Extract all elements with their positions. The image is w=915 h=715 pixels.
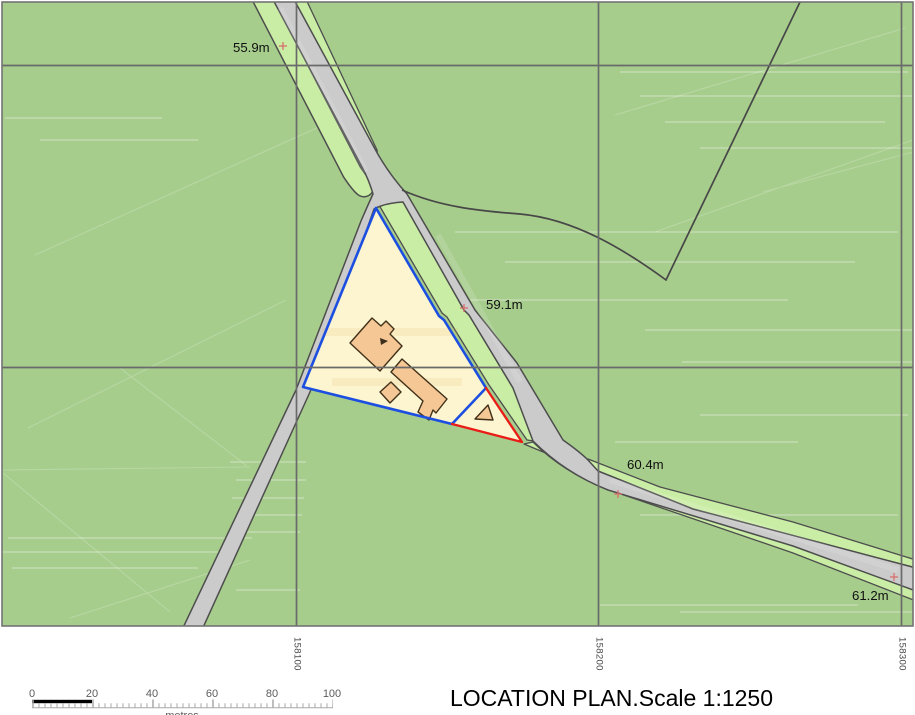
spot-height-label: 55.9m — [233, 40, 270, 55]
grid-easting-label: 158100 — [292, 637, 303, 671]
scale-tick-label: 60 — [206, 688, 218, 700]
scale-tick-label: 40 — [146, 688, 158, 700]
grid-easting-label: 158200 — [594, 637, 605, 671]
plan-title: LOCATION PLAN.Scale 1:1250 — [450, 685, 773, 711]
map-canvas: 55.9m 59.1m 60.4m 61.2m — [0, 0, 915, 632]
spot-height-label: 60.4m — [627, 457, 664, 472]
scale-tick-label: 80 — [266, 688, 278, 700]
scale-unit-label: metres — [165, 710, 199, 715]
scale-bar-black-segment — [32, 700, 92, 703]
scale-tick-label: 20 — [86, 688, 98, 700]
location-plan-page: 55.9m 59.1m 60.4m 61.2m 158100 158200 15… — [0, 0, 915, 715]
scale-tick-label: 0 — [29, 688, 35, 700]
scale-tick-label: 100 — [323, 688, 341, 700]
spot-height-label: 59.1m — [486, 297, 523, 312]
spot-height-label: 61.2m — [852, 588, 889, 603]
grid-easting-label: 158300 — [897, 637, 908, 671]
